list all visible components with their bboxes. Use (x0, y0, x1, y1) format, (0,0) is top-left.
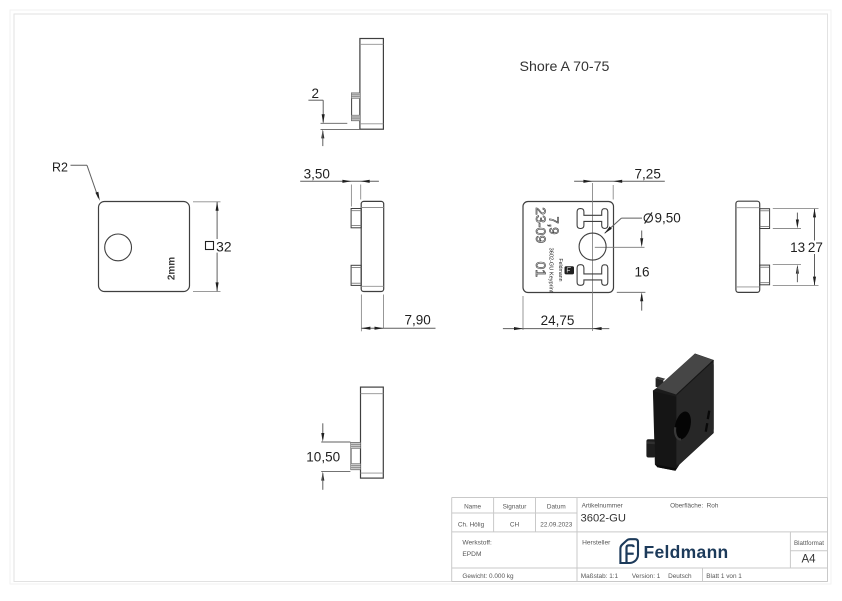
svg-text:CH: CH (510, 522, 520, 529)
svg-text:Deutsch: Deutsch (668, 573, 692, 580)
svg-text:01: 01 (533, 262, 549, 278)
svg-text:Datum: Datum (547, 504, 566, 511)
svg-text:Name: Name (464, 504, 481, 511)
svg-text:Blattformat: Blattformat (794, 540, 824, 547)
svg-text:Feldmann: Feldmann (557, 258, 563, 281)
svg-text:3602-GU: 3602-GU (581, 513, 626, 525)
svg-text:Feldmann: Feldmann (644, 542, 729, 562)
svg-text:32: 32 (216, 240, 231, 255)
svg-text:EPDM: EPDM (462, 551, 481, 558)
svg-text:16: 16 (634, 265, 649, 280)
svg-text:Artikelnummer: Artikelnummer (582, 503, 624, 510)
svg-text:Werkstoff:: Werkstoff: (462, 540, 492, 547)
svg-text:10,50: 10,50 (306, 450, 340, 465)
svg-text:24,75: 24,75 (541, 313, 575, 328)
svg-text:R2: R2 (52, 161, 68, 175)
svg-text:9,50: 9,50 (655, 211, 681, 226)
svg-text:3602-GU Keyprint: 3602-GU Keyprint (547, 248, 553, 293)
svg-text:Signatur: Signatur (503, 504, 528, 511)
svg-text:7,25: 7,25 (635, 166, 661, 181)
svg-text:Blatt 1 von 1: Blatt 1 von 1 (706, 573, 742, 580)
svg-text:2: 2 (312, 86, 320, 101)
svg-text:Shore A 70-75: Shore A 70-75 (520, 59, 610, 75)
svg-text:Hersteller: Hersteller (582, 540, 611, 547)
svg-text:Version: 1: Version: 1 (632, 573, 661, 580)
svg-text:Gewicht: 0.000 kg: Gewicht: 0.000 kg (462, 573, 514, 580)
svg-text:13: 13 (790, 240, 805, 255)
svg-text:2mm: 2mm (167, 257, 178, 280)
svg-text:Maßstab: 1:1: Maßstab: 1:1 (581, 573, 619, 580)
svg-text:7,90: 7,90 (404, 312, 430, 327)
svg-text:27: 27 (808, 240, 823, 255)
svg-text:Ch. Hölig: Ch. Hölig (458, 522, 485, 529)
svg-text:3,50: 3,50 (304, 167, 330, 182)
svg-text:7,9: 7,9 (546, 216, 561, 234)
svg-text:A4: A4 (801, 554, 816, 566)
svg-text:22.09.2023: 22.09.2023 (540, 522, 572, 529)
svg-text:Oberfläche: Roh: Oberfläche: Roh (670, 503, 719, 510)
